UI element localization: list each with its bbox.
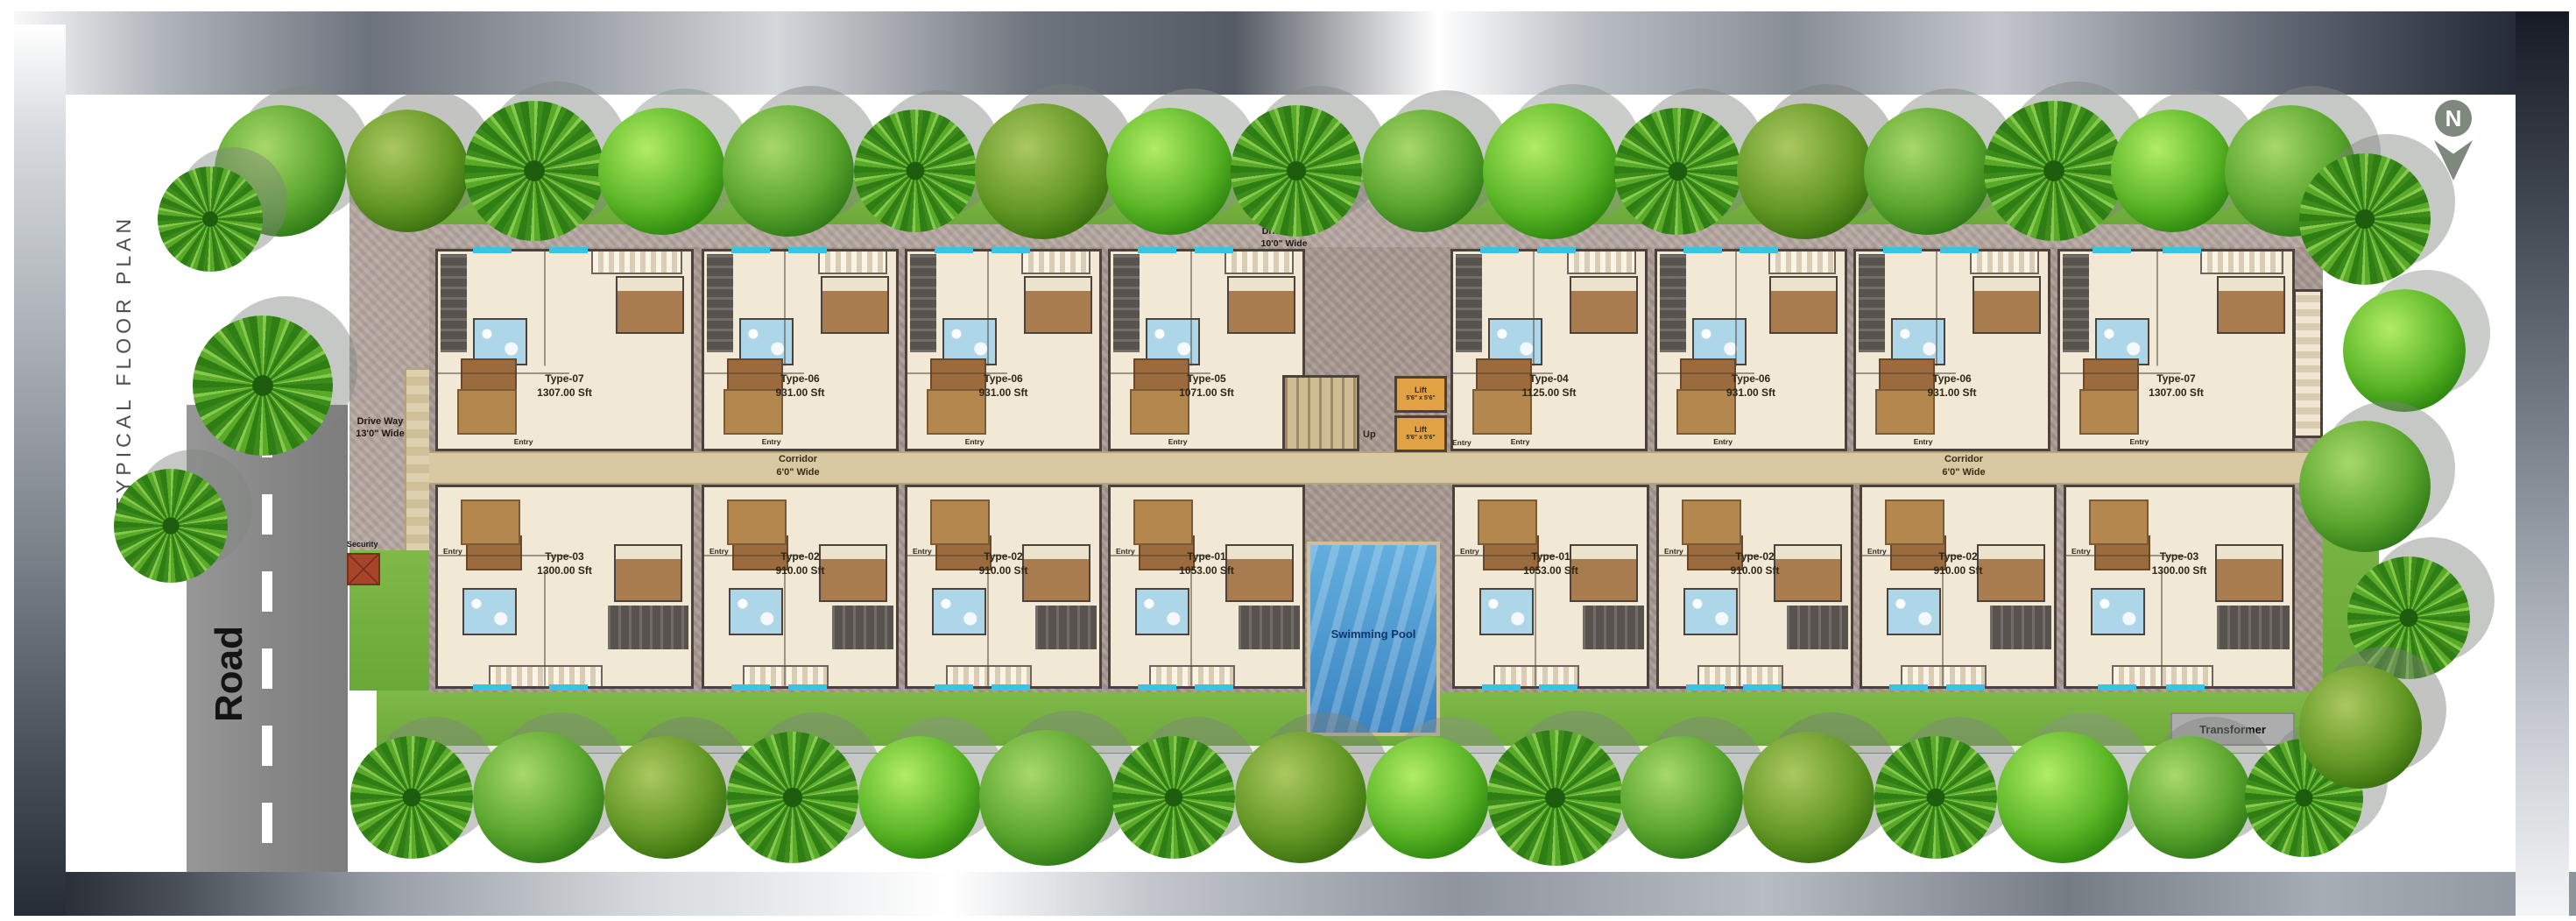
unit-label: Type-02910.00 Sft [1659, 550, 1851, 577]
balcony [1224, 252, 1294, 274]
unit-bottom-type-03: Type-031300.00 Sft Entry [435, 485, 694, 689]
sofa [930, 499, 990, 545]
kitchen [1035, 606, 1097, 649]
window [992, 247, 1030, 253]
tree [1235, 732, 1366, 863]
page-title: TYPICAL FLOOR PLAN [112, 79, 136, 510]
window [473, 247, 512, 253]
unit-label: Type-071307.00 Sft [2060, 372, 2292, 400]
kitchen [1456, 254, 1482, 352]
unit-label: Type-071307.00 Sft [438, 372, 691, 400]
road: Road [187, 405, 348, 872]
palm-tree [1112, 736, 1235, 859]
tree [604, 736, 727, 859]
stairs-up-label: Up [1363, 429, 1376, 440]
kitchen [1787, 606, 1848, 649]
balcony [489, 665, 603, 686]
tree [1997, 732, 2128, 863]
bed [1973, 276, 2041, 334]
sofa [1478, 499, 1537, 545]
window [2166, 684, 2205, 691]
tree [2128, 736, 2251, 859]
corridor [429, 451, 2323, 485]
window [1883, 247, 1922, 253]
window [1539, 684, 1577, 691]
sofa [2089, 499, 2149, 545]
tree [2299, 666, 2422, 789]
tree [598, 108, 725, 235]
unit-label: Type-06931.00 Sft [907, 372, 1099, 400]
north-letter: N [2435, 100, 2472, 137]
balcony [1901, 665, 1987, 686]
palm-tree [1231, 105, 1362, 237]
kitchen [910, 254, 936, 352]
bed [1769, 276, 1838, 334]
bathroom [729, 588, 783, 635]
north-arrow-pointer [2434, 140, 2473, 181]
kitchen [1660, 254, 1686, 352]
bed [1227, 276, 1295, 334]
bathroom [1135, 588, 1189, 635]
palm-tree [464, 101, 604, 241]
entry-label: Entry [1511, 437, 1530, 446]
palm-tree [114, 469, 228, 583]
kitchen [1859, 254, 1885, 352]
bed [821, 276, 889, 334]
entry-label: Entry [1713, 437, 1733, 446]
palm-tree [2347, 556, 2470, 679]
unit-top-type-05: Type-051071.00 Sft Entry [1108, 249, 1305, 451]
unit-bottom-type-02: Type-02910.00 Sft Entry [702, 485, 899, 689]
unit-label: Type-02910.00 Sft [1862, 550, 2054, 577]
palm-tree [2299, 153, 2431, 285]
bed [1570, 276, 1638, 334]
tree [858, 736, 981, 859]
kitchen [441, 254, 467, 352]
balcony [818, 252, 887, 274]
unit-top-type-06: Type-06931.00 Sft Entry [905, 249, 1102, 451]
balcony [1493, 665, 1580, 686]
sofa [1133, 499, 1193, 545]
tree [1864, 108, 1991, 235]
tree [1366, 736, 1489, 859]
bathroom [1479, 588, 1534, 635]
driveway-left-label-line1: Drive Way [347, 415, 413, 428]
kitchen [608, 606, 688, 649]
unit-top-type-07: Type-071307.00 Sft Entry [2057, 249, 2295, 451]
tree [975, 103, 1111, 239]
kitchen [1583, 606, 1644, 649]
entry-label: Entry [2130, 437, 2149, 446]
kitchen [2063, 254, 2089, 352]
window [1740, 247, 1778, 253]
palm-tree [193, 315, 333, 456]
unit-bottom-type-02: Type-02910.00 Sft Entry [1860, 485, 2057, 689]
balcony [1567, 252, 1636, 274]
window [1195, 247, 1233, 253]
bed [616, 276, 684, 334]
palm-tree [1874, 736, 1997, 859]
security-label: Security [347, 540, 408, 549]
window [788, 684, 827, 691]
bed [2217, 276, 2285, 334]
kitchen [1990, 606, 2051, 649]
window [1683, 247, 1722, 253]
unit-top-type-07: Type-071307.00 Sft Entry [435, 249, 694, 451]
corridor-label-right: Corridor 6'0" Wide [1889, 453, 2038, 479]
window [1889, 684, 1928, 691]
sofa [1682, 499, 1741, 545]
tree [979, 730, 1115, 866]
unit-label: Type-06931.00 Sft [1657, 372, 1845, 400]
window [1195, 684, 1233, 691]
tree [723, 105, 854, 237]
tree [1737, 103, 1873, 239]
bathroom [462, 588, 517, 635]
balcony [946, 665, 1033, 686]
corridor-label-left: Corridor 6'0" Wide [723, 453, 872, 479]
window [1537, 247, 1576, 253]
lift-2: Lift 5'6" x 5'6" [1394, 415, 1447, 452]
tree [2299, 421, 2431, 552]
tree [346, 110, 469, 232]
entry-label: Entry [1452, 438, 1471, 447]
sofa [461, 499, 520, 545]
palm-tree [854, 110, 977, 232]
unit-label: Type-031300.00 Sft [438, 550, 691, 577]
road-label: Road [208, 573, 251, 722]
entry-label: Entry [1664, 547, 1683, 556]
unit-top-type-06: Type-06931.00 Sft Entry [1853, 249, 2050, 451]
balcony [1021, 252, 1090, 274]
balcony [1768, 252, 1836, 274]
unit-label: Type-011053.00 Sft [1455, 550, 1647, 577]
security-hut [347, 553, 380, 585]
right-terrace [2293, 289, 2323, 438]
balcony [2112, 665, 2213, 686]
window [731, 247, 770, 253]
driveway-left-label-line2: 13'0" Wide [347, 428, 413, 440]
staircase [1282, 375, 1359, 451]
window [992, 684, 1030, 691]
window [1940, 247, 1979, 253]
palm-tree [1487, 730, 1623, 866]
balcony [743, 665, 829, 686]
driveway-left-label: Drive Way 13'0" Wide [347, 415, 413, 441]
entry-label: Entry [1867, 547, 1887, 556]
road-centerline [262, 417, 272, 872]
kitchen [2217, 606, 2290, 649]
unit-label: Type-02910.00 Sft [704, 550, 896, 577]
entry-label: Entry [913, 547, 932, 556]
window [549, 247, 588, 253]
window [1686, 684, 1725, 691]
sofa [727, 499, 787, 545]
balcony [591, 252, 682, 274]
tree [1483, 103, 1619, 239]
palm-tree [1614, 108, 1741, 235]
bathroom [2091, 588, 2145, 635]
kitchen [1113, 254, 1140, 352]
window [2163, 247, 2201, 253]
window [1480, 247, 1519, 253]
transformer-label: Transformer [2199, 723, 2266, 736]
tree [1362, 110, 1485, 232]
bathroom [932, 588, 986, 635]
palm-tree [1984, 101, 2124, 241]
unit-label: Type-051071.00 Sft [1111, 372, 1302, 400]
entry-label: Entry [514, 437, 533, 446]
bathroom [1683, 588, 1738, 635]
entry-label: Entry [1168, 437, 1188, 446]
kitchen [1239, 606, 1300, 649]
palm-tree [350, 736, 473, 859]
window [1482, 684, 1521, 691]
frame-right-bar [2516, 11, 2569, 916]
bathroom [1887, 588, 1941, 635]
swimming-pool: Swimming Pool [1307, 542, 1440, 736]
tree [473, 732, 604, 863]
window [473, 684, 512, 691]
unit-label: Type-031300.00 Sft [2066, 550, 2292, 577]
north-arrow-icon: N [2433, 100, 2474, 184]
window [1946, 684, 1985, 691]
window [1138, 684, 1176, 691]
balcony [1149, 665, 1236, 686]
tree [1106, 108, 1233, 235]
balcony [2200, 252, 2283, 274]
window [2093, 247, 2131, 253]
swimming-pool-label: Swimming Pool [1310, 627, 1436, 641]
window [788, 247, 827, 253]
bed [1024, 276, 1092, 334]
window [731, 684, 770, 691]
palm-tree [727, 732, 858, 863]
kitchen [832, 606, 893, 649]
tree [2111, 110, 2234, 232]
tree [1743, 732, 1874, 863]
window [1138, 247, 1176, 253]
entry-label: Entry [709, 547, 729, 556]
unit-bottom-type-01: Type-011053.00 Sft Entry [1108, 485, 1305, 689]
frame-left-bar [14, 25, 66, 916]
unit-bottom-type-03: Type-031300.00 Sft Entry [2064, 485, 2295, 689]
kitchen [707, 254, 733, 352]
window [935, 684, 973, 691]
unit-label: Type-06931.00 Sft [704, 372, 896, 400]
unit-label: Type-06931.00 Sft [1856, 372, 2048, 400]
window [2098, 684, 2136, 691]
tree [2343, 289, 2466, 412]
entry-label: Entry [762, 437, 781, 446]
entry-label: Entry [2071, 547, 2091, 556]
balcony [1697, 665, 1784, 686]
tree [1620, 736, 1743, 859]
unit-bottom-type-02: Type-02910.00 Sft Entry [905, 485, 1102, 689]
palm-tree [158, 166, 263, 272]
window [935, 247, 973, 253]
unit-label: Type-041125.00 Sft [1453, 372, 1645, 400]
floor-plan-canvas: TYPICAL FLOOR PLAN Road Drive Way 10'0" … [0, 0, 2576, 921]
sofa [1885, 499, 1944, 545]
unit-label: Type-011053.00 Sft [1111, 550, 1302, 577]
unit-top-type-06: Type-06931.00 Sft Entry [702, 249, 899, 451]
unit-label: Type-02910.00 Sft [907, 550, 1099, 577]
frame-top-bar [14, 11, 2557, 95]
entry-label: Entry [1914, 437, 1933, 446]
unit-top-type-06: Type-06931.00 Sft Entry [1655, 249, 1847, 451]
frame-bottom-bar [35, 872, 2576, 916]
balcony [1970, 252, 2039, 274]
unit-bottom-type-01: Type-011053.00 Sft Entry [1452, 485, 1649, 689]
entry-label: Entry [1116, 547, 1135, 556]
lift-1: Lift 5'6" x 5'6" [1394, 376, 1447, 413]
entry-label: Entry [443, 547, 462, 556]
window [549, 684, 588, 691]
entry-label: Entry [1460, 547, 1479, 556]
window [1743, 684, 1782, 691]
unit-bottom-type-02: Type-02910.00 Sft Entry [1656, 485, 1853, 689]
entry-label: Entry [965, 437, 985, 446]
unit-top-type-04: Type-041125.00 Sft Entry [1450, 249, 1648, 451]
